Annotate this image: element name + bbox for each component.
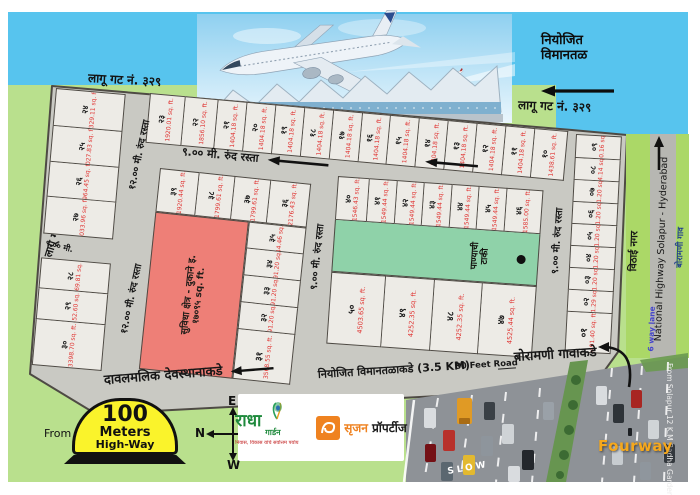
plot-cell: २०1404.18 sq. ft. — [243, 102, 276, 154]
radha-tagline: निवास, विकास यांचे सर्वोत्तम पर्याय — [235, 440, 309, 446]
plot-cell: ४९4252.35 sq. ft. — [381, 276, 434, 351]
plot-cell: २७2033.96 sq. ft. — [43, 197, 116, 240]
road-9m-short-label: ९.०० मी. — [44, 238, 74, 255]
water-tank-dot — [516, 255, 526, 265]
plot-cell: ३०3398.70 sq. ft. — [32, 319, 106, 371]
plot-cell: ०८1344.14 sq. ft. — [574, 158, 621, 182]
plot-cell: १७1404.18 sq. ft. — [329, 110, 362, 162]
plot-cell: १०1438.61 sq. ft. — [531, 128, 568, 181]
plots-47-50: ५०4503.65 sq. ft. ४९4252.35 sq. ft. ४८42… — [326, 272, 537, 358]
curved-left-arrow-icon — [598, 338, 634, 390]
plot-cell: २१1404.18 sq. ft. — [214, 99, 247, 151]
left-arrow-icon — [540, 84, 616, 98]
plot-cell: ४५1549.44 sq. ft. — [477, 186, 508, 232]
block-midright: ४०1546.43 sq. ft. ४१1549.44 sq. ft. ४२15… — [326, 176, 543, 358]
plot-cell: ११1404.18 sq. ft. — [502, 125, 535, 177]
fourway-label: Fourway — [598, 437, 673, 455]
developer-logos: राधा गार्डन निवास, विकास यांचे सर्वोत्तम… — [238, 394, 404, 461]
plot-cell: ४२1549.44 sq. ft. — [394, 180, 425, 226]
suvidha-area: सुविधा क्षेत्र - दुकाने इ. १७०९५ sq. ft. — [139, 212, 249, 379]
plot-cell: ३९1920.44 sq. ft. — [155, 168, 199, 216]
six-way-lane-label: 6 way lane — [647, 306, 656, 352]
photo-caption: From Solapur 12 K.M Radha Garden — [665, 363, 673, 475]
from-label: From — [44, 427, 71, 440]
plot-cell: १९1404.18 sq. ft. — [272, 104, 305, 156]
vithai-nagar-label: विठाई नगर — [629, 222, 642, 280]
plot-cell: २६1964.45 sq. ft. — [47, 162, 120, 203]
plot-cell: ४८4252.35 sq. ft. — [430, 279, 483, 354]
block-midleft: ३९1920.44 sq. ft. ३८1799.61 sq. ft. ३७17… — [139, 168, 311, 385]
plots-24-27: २४2329.11 sq. ft. २५2027.83 sq. ft. २६19… — [43, 88, 125, 240]
plot-cell: ४०1546.43 sq. ft. — [335, 176, 370, 222]
plot-cell: ०३1291.20 sq. ft. — [568, 268, 615, 292]
plot-cell: ४१1549.44 sq. ft. — [367, 178, 398, 224]
peacock-feather-icon — [267, 401, 287, 421]
plot-cell: १५1404.18 sq. ft. — [387, 115, 420, 167]
srujan-properties-logo: सृजन प्रॉपर्टीज — [316, 416, 407, 440]
plot-cell: १८1404.18 sq. ft. — [301, 107, 334, 159]
plot-cell: ०४1291.20 sq. ft. — [569, 246, 616, 270]
plots-28-30: २८1469.81 sq. ft. २९1452.60 sq. ft. ३०33… — [32, 257, 111, 371]
plot-cell: ३६2176.43 sq. ft. — [267, 180, 311, 228]
plot-cell: २४2329.11 sq. ft. — [53, 88, 126, 132]
plot-cell: १६1404.18 sq. ft. — [358, 112, 391, 164]
plot-cell: ४७4525.44 sq. ft. — [478, 282, 537, 358]
plot-cell: ०९1340.16 sq. ft. — [575, 134, 622, 160]
radha-garden-logo: राधा गार्डन निवास, विकास यांचे सर्वोत्तम… — [235, 403, 309, 453]
left-arrow-icon — [229, 362, 276, 377]
plot-cell: २२1856.10 sq. ft. — [181, 96, 218, 149]
plot-cell: ०२1291.29 sq. ft. — [567, 290, 614, 314]
plot-layout-flyer: SLOW लागू गट नं. ३२९ लागू गट नं. ३२९ निय… — [0, 0, 700, 495]
gat-329-right-label: लागू गट नं. ३२९ — [518, 99, 592, 115]
plot-cell: ३८1799.61 sq. ft. — [195, 172, 235, 220]
plot-cell: ४३1549.44 sq. ft. — [422, 182, 453, 228]
plot-cell: ४४1549.44 sq. ft. — [449, 184, 480, 230]
compass-n: N — [195, 426, 205, 440]
plot-cell: ४६1585.00 sq. ft. — [504, 188, 543, 234]
plot-cell: २५2027.83 sq. ft. — [50, 126, 123, 168]
planned-airport-label: नियोजित विमानतळ — [541, 34, 587, 64]
plot-cell: ०७1291.20 sq. ft. — [572, 180, 619, 204]
plot-cell: ५०4503.65 sq. ft. — [326, 272, 386, 348]
srujan-mark-icon — [316, 416, 340, 440]
milestone-base — [64, 455, 186, 464]
plot-cell: ०६1291.20 sq. ft. — [571, 202, 618, 226]
up-arrow-icon — [652, 136, 666, 172]
plot-cell: ३७1799.61 sq. ft. — [231, 176, 271, 224]
plot-cell: ०५1291.20 sq. ft. — [570, 224, 617, 248]
